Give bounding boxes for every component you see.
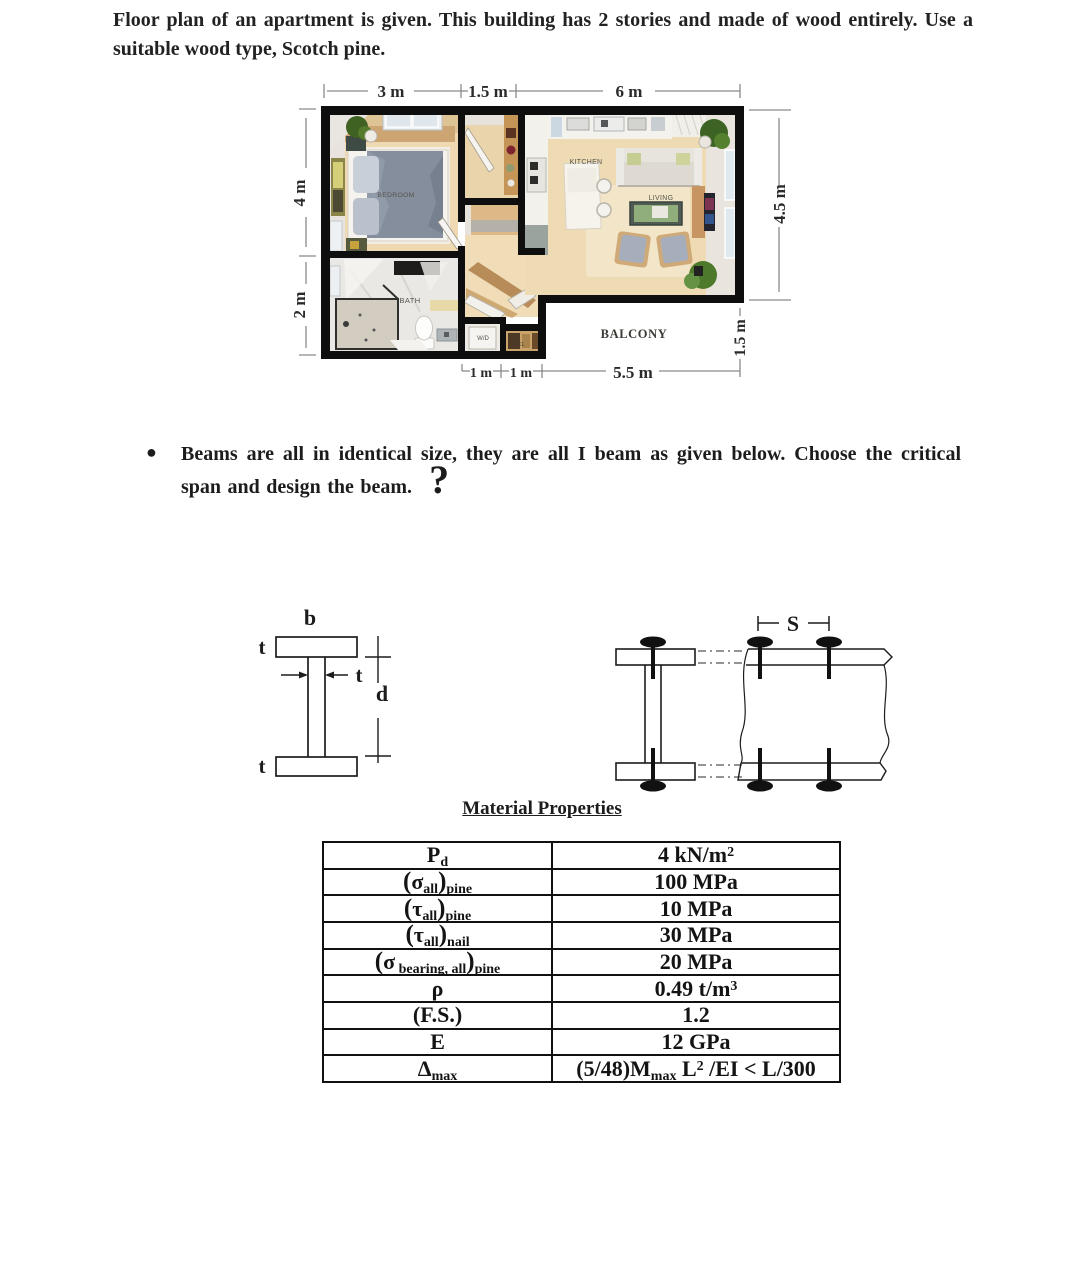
svg-text:d: d bbox=[376, 681, 388, 706]
svg-text:KITCHEN: KITCHEN bbox=[570, 159, 603, 166]
svg-text:BATH: BATH bbox=[399, 296, 420, 305]
svg-text:CL: CL bbox=[517, 342, 524, 348]
svg-text:t: t bbox=[259, 754, 266, 778]
svg-text:5.5 m: 5.5 m bbox=[613, 363, 653, 382]
svg-text:4 m: 4 m bbox=[290, 180, 309, 207]
svg-text:b: b bbox=[304, 605, 316, 630]
svg-text:BEDROOM: BEDROOM bbox=[377, 192, 414, 199]
svg-text:3 m: 3 m bbox=[378, 82, 405, 101]
svg-text:1 m: 1 m bbox=[510, 366, 533, 381]
svg-text:1.5 m: 1.5 m bbox=[468, 82, 508, 101]
svg-text:W/D: W/D bbox=[477, 336, 489, 342]
svg-text:BALCONY: BALCONY bbox=[601, 327, 668, 341]
svg-text:t: t bbox=[356, 663, 363, 687]
svg-text:2 m: 2 m bbox=[290, 292, 309, 319]
svg-text:LIVING: LIVING bbox=[649, 195, 674, 202]
svg-text:t: t bbox=[259, 635, 266, 659]
svg-text:S: S bbox=[787, 611, 799, 636]
svg-text:4.5 m: 4.5 m bbox=[770, 184, 789, 224]
svg-text:1.5 m: 1.5 m bbox=[732, 319, 749, 357]
svg-text:1 m: 1 m bbox=[470, 366, 493, 381]
svg-text:6 m: 6 m bbox=[616, 82, 643, 101]
